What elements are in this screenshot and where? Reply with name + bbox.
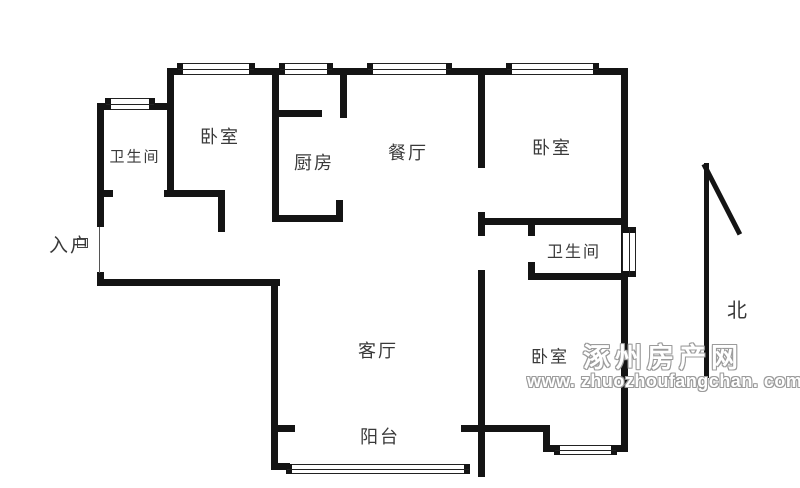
window-glass-line — [280, 69, 332, 70]
window-glass-line — [287, 469, 469, 470]
room-label-balcony: 阳台 — [360, 428, 400, 446]
window-symbol — [367, 63, 452, 75]
window-glass-line — [507, 69, 598, 70]
wall-segment — [528, 225, 535, 236]
wall-segment — [478, 218, 628, 225]
entry-opening-line — [99, 227, 100, 273]
wall-segment — [461, 425, 550, 432]
wall-segment — [167, 68, 174, 197]
window-glass-line — [555, 450, 616, 451]
window-symbol — [286, 464, 470, 474]
radiator-window-symbol — [622, 227, 636, 277]
wall-segment — [97, 190, 113, 197]
wall-segment — [271, 425, 295, 432]
window-symbol — [506, 63, 599, 75]
room-label-bedroom-top-left: 卧室 — [200, 128, 240, 146]
watermark-site-name: 涿州房产网 — [583, 345, 743, 372]
wall-segment — [478, 270, 485, 477]
window-glass-line — [629, 228, 630, 276]
window-glass-line — [106, 104, 154, 105]
room-label-kitchen: 厨房 — [294, 154, 334, 172]
wall-segment — [272, 110, 322, 117]
room-label-dining: 餐厅 — [388, 144, 428, 162]
wall-segment — [164, 190, 225, 197]
window-glass-line — [368, 69, 451, 70]
wall-segment — [336, 200, 343, 222]
room-label-bedroom-bottom-right: 卧室 — [531, 349, 569, 366]
floor-plan: 卫生间 卧室 厨房 餐厅 卧室 入户 卫生间 客厅 阳台 卧室 北 涿州房产网 … — [0, 0, 800, 488]
watermark-site-url: www. zhuozhoufangchan. com — [527, 372, 800, 390]
wall-segment — [97, 103, 104, 227]
wall-segment — [272, 215, 343, 222]
wall-segment — [271, 279, 278, 470]
wall-segment — [340, 68, 347, 118]
window-symbol — [105, 98, 155, 110]
wall-segment — [97, 279, 280, 286]
room-label-bathroom-top-left: 卫生间 — [109, 150, 160, 165]
window-glass-line — [178, 69, 254, 70]
wall-segment — [218, 197, 225, 232]
room-label-bathroom-right: 卫生间 — [547, 245, 601, 261]
window-symbol — [554, 445, 617, 455]
wall-segment — [528, 273, 628, 280]
wall-segment — [528, 262, 535, 273]
window-symbol — [177, 63, 255, 75]
window-symbol — [279, 63, 333, 75]
north-label: 北 — [727, 301, 747, 321]
wall-segment — [330, 68, 370, 75]
room-label-entrance: 入户 — [49, 237, 91, 256]
room-label-bedroom-top-right: 卧室 — [532, 139, 572, 157]
wall-segment — [272, 68, 279, 222]
wall-segment — [543, 425, 550, 452]
wall-segment — [478, 68, 485, 168]
room-label-living: 客厅 — [358, 342, 398, 360]
